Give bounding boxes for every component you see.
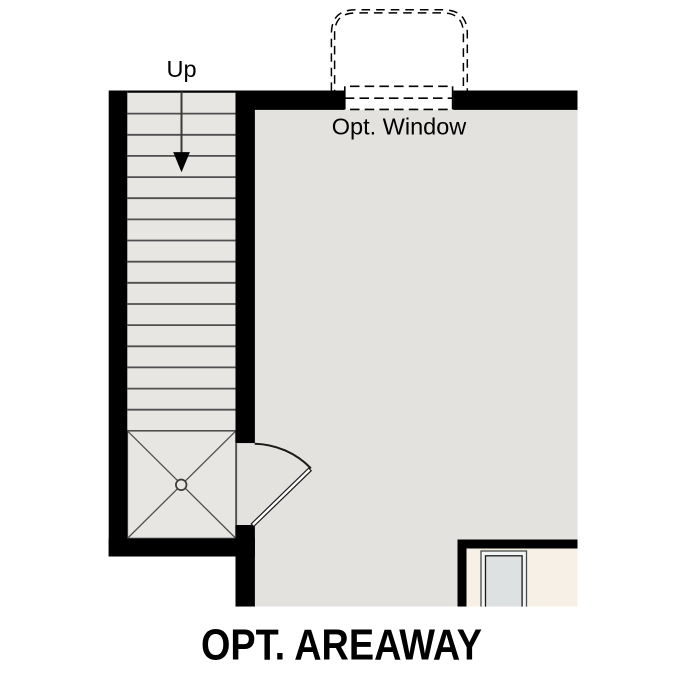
svg-text:OPT. AREAWAY: OPT. AREAWAY [201, 622, 482, 670]
svg-text:Up: Up [166, 56, 196, 82]
svg-text:Opt. Window: Opt. Window [332, 113, 468, 139]
